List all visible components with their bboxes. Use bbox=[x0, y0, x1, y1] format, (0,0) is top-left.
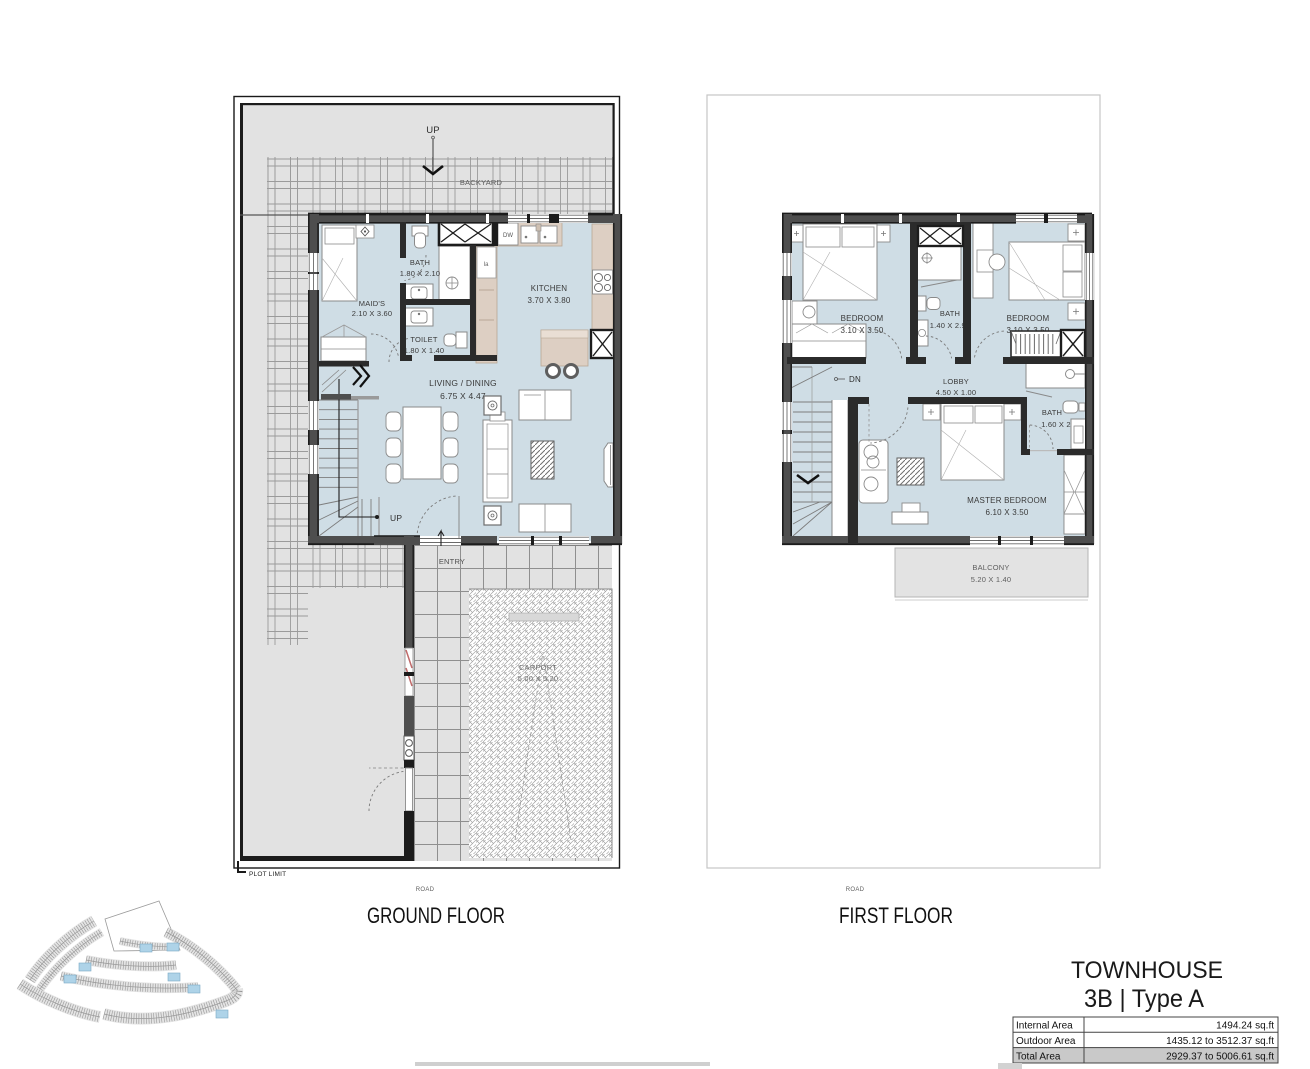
svg-text:ROAD: ROAD bbox=[416, 887, 435, 893]
svg-text:GROUND FLOOR: GROUND FLOOR bbox=[367, 903, 505, 928]
svg-text:ROAD: ROAD bbox=[846, 887, 865, 893]
svg-text:BATH: BATH bbox=[1042, 408, 1062, 417]
svg-text:UP: UP bbox=[426, 125, 440, 136]
svg-text:LIVING / DINING: LIVING / DINING bbox=[429, 378, 497, 388]
svg-text:1.60 X 2: 1.60 X 2 bbox=[1041, 420, 1071, 429]
svg-text:DN: DN bbox=[849, 375, 861, 384]
svg-text:BEDROOM: BEDROOM bbox=[841, 314, 884, 323]
svg-text:ENTRY: ENTRY bbox=[439, 557, 465, 566]
svg-text:BEDROOM: BEDROOM bbox=[1007, 314, 1050, 323]
svg-text:DW: DW bbox=[503, 233, 513, 239]
svg-text:1.80 X 2.10: 1.80 X 2.10 bbox=[400, 269, 441, 278]
svg-text:BACKYARD: BACKYARD bbox=[460, 178, 503, 187]
svg-text:PLOT LIMIT: PLOT LIMIT bbox=[249, 871, 286, 878]
svg-text:5.00 X 5.20: 5.00 X 5.20 bbox=[518, 674, 559, 683]
svg-text:Outdoor Area: Outdoor Area bbox=[1016, 1036, 1076, 1047]
svg-text:2.10 X 3.60: 2.10 X 3.60 bbox=[352, 309, 393, 318]
svg-text:TOWNHOUSE: TOWNHOUSE bbox=[1071, 957, 1223, 984]
svg-text:1494.24 sq.ft: 1494.24 sq.ft bbox=[1216, 1021, 1274, 1032]
svg-text:3.10 X 3.50: 3.10 X 3.50 bbox=[840, 326, 883, 335]
svg-text:Total Area: Total Area bbox=[1016, 1052, 1061, 1063]
svg-text:CARPORT: CARPORT bbox=[519, 663, 557, 672]
svg-text:UP: UP bbox=[390, 513, 402, 523]
svg-text:LOBBY: LOBBY bbox=[943, 377, 969, 386]
svg-text:BATH: BATH bbox=[410, 258, 430, 267]
svg-text:KITCHEN: KITCHEN bbox=[531, 284, 568, 293]
svg-text:1.80 X 1.40: 1.80 X 1.40 bbox=[404, 346, 445, 355]
svg-text:4.50 X 1.00: 4.50 X 1.00 bbox=[936, 388, 977, 397]
svg-text:BATH: BATH bbox=[940, 309, 960, 318]
svg-text:3B | Type A: 3B | Type A bbox=[1084, 985, 1204, 1013]
svg-text:6.10 X 3.50: 6.10 X 3.50 bbox=[985, 508, 1028, 517]
svg-text:Internal Area: Internal Area bbox=[1016, 1021, 1073, 1032]
svg-text:2929.37 to 5006.61 sq.ft: 2929.37 to 5006.61 sq.ft bbox=[1166, 1052, 1274, 1063]
svg-text:BALCONY: BALCONY bbox=[972, 563, 1009, 572]
svg-text:MAID'S: MAID'S bbox=[359, 299, 385, 308]
svg-text:5.20 X 1.40: 5.20 X 1.40 bbox=[971, 575, 1012, 584]
svg-text:3.70 X 3.80: 3.70 X 3.80 bbox=[527, 296, 570, 305]
svg-text:Ia: Ia bbox=[483, 262, 489, 268]
svg-text:6.75 X 4.47: 6.75 X 4.47 bbox=[440, 391, 486, 401]
svg-text:TOILET: TOILET bbox=[410, 335, 438, 344]
svg-text:FIRST FLOOR: FIRST FLOOR bbox=[839, 903, 953, 928]
svg-text:1435.12 to 3512.37 sq.ft: 1435.12 to 3512.37 sq.ft bbox=[1166, 1036, 1274, 1047]
svg-text:MASTER BEDROOM: MASTER BEDROOM bbox=[967, 496, 1047, 505]
